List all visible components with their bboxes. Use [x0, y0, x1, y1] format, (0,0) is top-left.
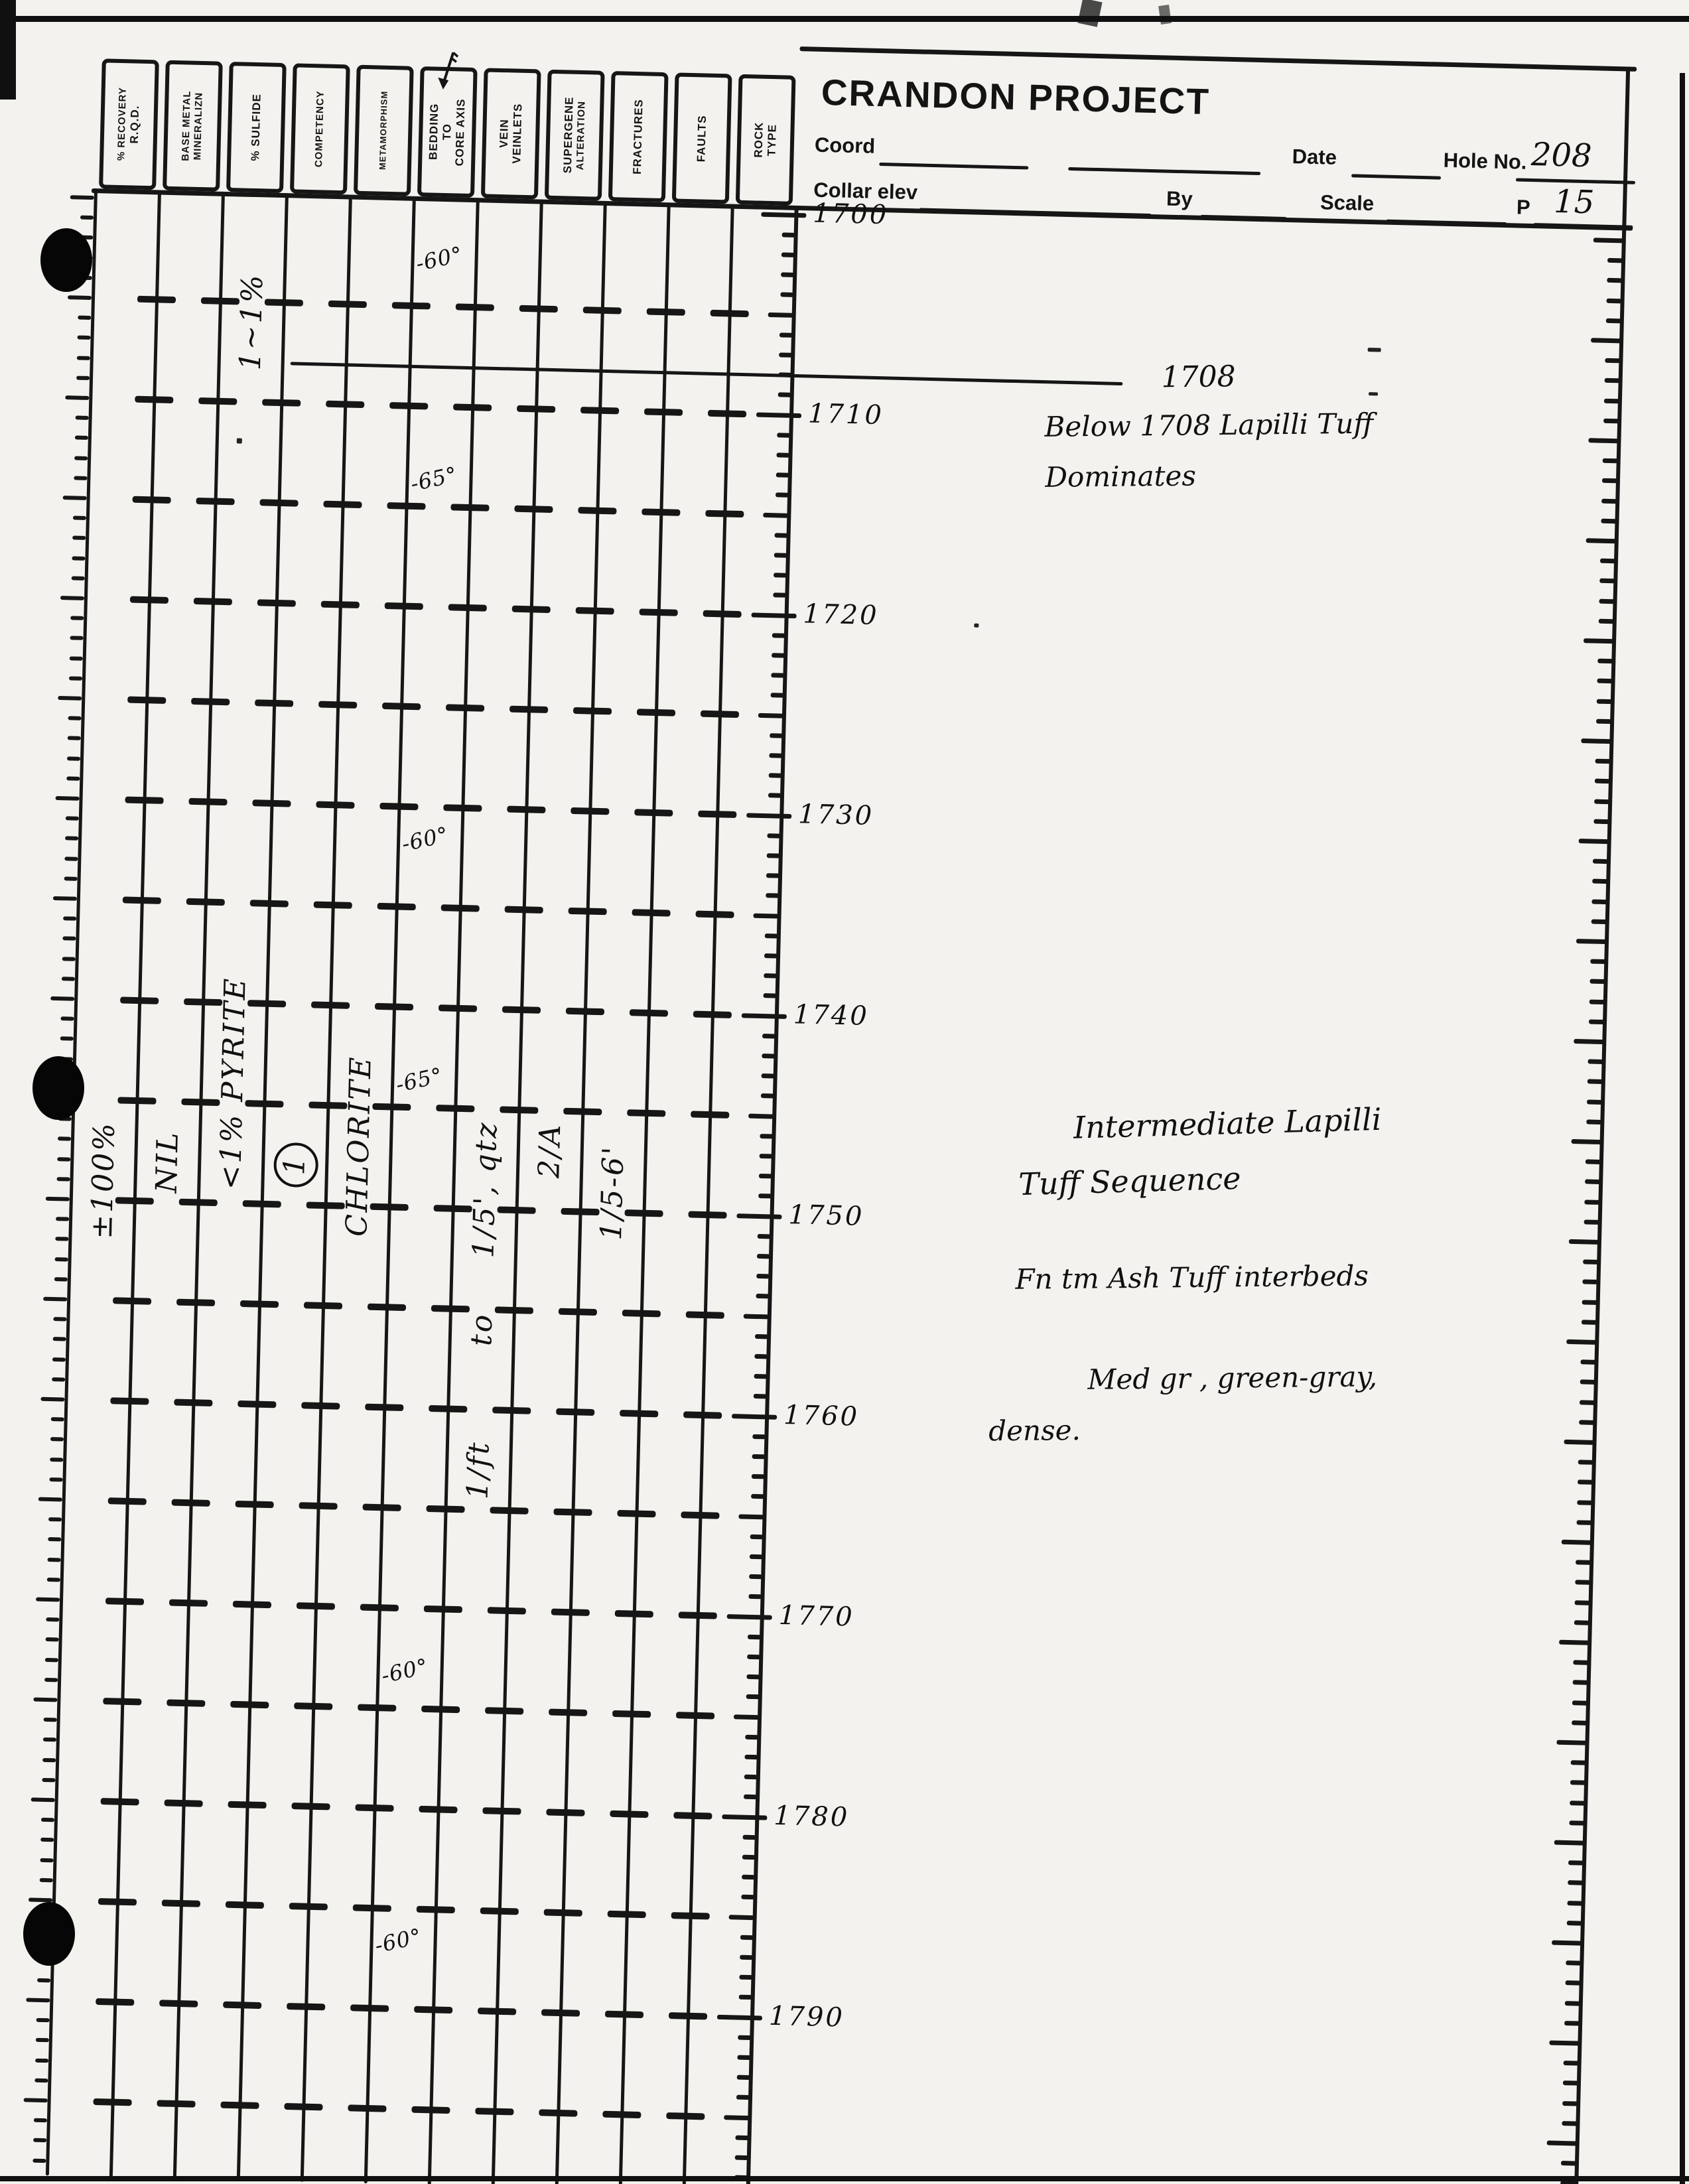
left-ruler-tick	[64, 876, 78, 880]
column-tick	[617, 1510, 655, 1517]
depth-tick-stub	[756, 1815, 767, 1820]
right-ruler-tick	[1606, 318, 1622, 324]
left-ruler-tick	[60, 596, 84, 600]
column-header-label: SUPERGENE	[562, 96, 576, 173]
column-tick	[424, 1605, 462, 1613]
depth-tick	[749, 1574, 762, 1579]
column-tick	[348, 2104, 386, 2112]
left-ruler-tick	[26, 1998, 50, 2002]
column-tick	[622, 1310, 661, 1317]
right-ruler-tick	[1581, 738, 1611, 744]
depth-tick-stub	[791, 413, 801, 417]
left-ruler-tick	[46, 1617, 59, 1621]
right-ruler-tick	[1547, 2140, 1578, 2146]
scan-top-edge	[0, 16, 1689, 22]
column-tick	[683, 1411, 722, 1418]
column-tick	[615, 1610, 653, 1617]
column-tick	[289, 1903, 328, 1910]
column-tick	[647, 308, 685, 315]
ink-speck	[237, 438, 242, 443]
date-label: Date	[1292, 145, 1337, 170]
column-tick	[551, 1609, 590, 1616]
right-ruler-tick	[1564, 1440, 1594, 1445]
right-ruler-tick	[1605, 358, 1621, 364]
right-ruler-tick	[1564, 2021, 1580, 2026]
column-tick	[375, 1003, 413, 1010]
depth-scale-line	[746, 206, 799, 2184]
left-ruler-tick	[43, 1738, 56, 1741]
left-ruler-tick	[34, 2079, 48, 2082]
bedding-angle-note: -65°	[408, 462, 460, 497]
column-tick	[370, 1203, 409, 1211]
column-tick	[137, 296, 176, 303]
ink-speck	[1368, 348, 1381, 352]
column-tick	[385, 602, 423, 610]
column-tick	[421, 1706, 460, 1713]
depth-tick	[744, 1775, 758, 1779]
right-ruler-tick	[1588, 438, 1619, 443]
column-tick	[539, 2109, 577, 2116]
depth-tick	[722, 1814, 756, 1819]
depth-tick	[757, 1254, 770, 1259]
project-title: CRANDON PROJECT	[821, 71, 1211, 123]
right-ruler-tick	[1589, 999, 1605, 1004]
depth-tick	[732, 1414, 766, 1419]
depth-tick	[754, 1354, 768, 1359]
left-ruler-tick	[56, 1217, 69, 1221]
left-ruler-tick	[60, 1016, 74, 1020]
column-header-label: ALTERATION	[575, 101, 587, 171]
depth-tick-stub	[752, 2015, 762, 2020]
column-tick	[127, 697, 166, 704]
left-ruler-tick	[36, 2038, 49, 2042]
left-ruler-tick	[69, 676, 82, 680]
left-ruler-tick	[78, 316, 91, 320]
left-ruler-tick	[68, 736, 81, 740]
left-ruler-tick	[58, 696, 82, 701]
column-header-label: BASE METAL	[180, 90, 192, 161]
right-ruler-tick	[1568, 1860, 1584, 1866]
column-header-label: % SULFIDE	[249, 94, 263, 161]
column-header-label: TYPE	[766, 124, 779, 157]
depth-label: 1730	[798, 799, 874, 831]
column-tick	[624, 1209, 663, 1217]
depth-tick	[754, 1374, 768, 1379]
column-header-label: FAULTS	[695, 115, 709, 162]
right-ruler-tick	[1562, 2101, 1578, 2106]
entry-vein: 1/ft	[460, 1440, 496, 1499]
punch-hole	[40, 228, 92, 292]
depth-tick	[763, 512, 788, 517]
column-tick	[392, 302, 431, 309]
depth-tick	[782, 232, 795, 237]
coord-blank-2	[1068, 167, 1260, 175]
left-ruler-tick	[33, 1698, 57, 1702]
left-ruler-tick	[57, 1157, 70, 1161]
column-tick	[240, 1300, 279, 1308]
column-header-supergene: SUPERGENEALTERATION	[545, 70, 605, 201]
left-ruler-tick	[73, 516, 86, 520]
ink-speck	[974, 624, 979, 628]
column-tick	[159, 2000, 198, 2007]
hole-no-value: 208	[1530, 136, 1592, 174]
depth-label: 1700	[813, 198, 889, 231]
column-tick	[306, 1201, 345, 1209]
contact-depth-label: 1708	[1161, 350, 1236, 403]
right-ruler-line	[1574, 66, 1630, 2184]
left-ruler-tick	[41, 1818, 54, 1822]
right-ruler-tick	[1595, 779, 1611, 784]
bedding-angle-note: -60°	[399, 822, 451, 857]
left-ruler-tick	[62, 957, 76, 961]
right-ruler-tick	[1572, 1139, 1602, 1144]
depth-tick	[773, 593, 786, 598]
column-tick	[553, 1509, 592, 1516]
right-ruler-tick	[1579, 1420, 1595, 1425]
column-tick	[169, 1599, 208, 1606]
column-tick	[255, 699, 293, 707]
column-tick	[492, 1406, 531, 1414]
left-ruler-tick	[38, 1497, 62, 1502]
depth-tick	[748, 1113, 774, 1119]
column-tick	[512, 606, 551, 613]
left-ruler-tick	[56, 796, 80, 801]
scan-corner-mark	[0, 0, 16, 100]
bedding-angle-arrow-icon	[435, 48, 459, 92]
depth-tick	[755, 1334, 768, 1339]
left-ruler-tick	[58, 1137, 71, 1141]
column-header-label: ROCK	[753, 121, 766, 157]
left-ruler-tick	[50, 1458, 63, 1462]
column-tick	[500, 1106, 538, 1113]
column-tick	[181, 1099, 220, 1106]
depth-tick	[776, 452, 789, 457]
column-tick	[184, 998, 222, 1006]
depth-tick	[766, 893, 779, 898]
column-tick	[117, 1097, 156, 1104]
right-ruler-tick	[1569, 1239, 1599, 1245]
depth-tick	[737, 2075, 750, 2080]
column-header-label: METAMORPHISM	[378, 91, 389, 171]
depth-tick	[771, 693, 784, 698]
column-tick	[681, 1511, 719, 1519]
entry-vein: to	[464, 1312, 499, 1346]
column-tick	[441, 904, 480, 912]
right-ruler-tick	[1597, 699, 1613, 704]
column-header-label: FRACTURES	[632, 99, 645, 174]
depth-tick	[760, 1134, 773, 1138]
depth-tick	[764, 993, 777, 998]
depth-tick	[767, 833, 780, 838]
depth-tick	[750, 1554, 763, 1559]
right-ruler-tick	[1561, 2161, 1577, 2166]
depth-tick	[756, 412, 791, 417]
column-tick	[485, 1707, 523, 1714]
right-ruler-tick	[1579, 839, 1609, 844]
column-tick	[363, 1504, 401, 1511]
entry-metamorphism: CHLORITE	[340, 1055, 378, 1237]
right-ruler-tick	[1593, 238, 1624, 243]
left-ruler-tick	[45, 1658, 58, 1662]
column-tick	[358, 1704, 396, 1711]
column-tick	[196, 498, 234, 505]
punch-hole	[23, 1902, 75, 1966]
left-ruler-tick	[53, 896, 77, 901]
column-tick	[431, 1305, 470, 1312]
depth-tick	[747, 1655, 760, 1659]
right-ruler-tick	[1570, 1801, 1586, 1806]
right-ruler-tick	[1582, 1280, 1598, 1285]
column-tick	[186, 898, 225, 906]
right-ruler-tick	[1593, 819, 1609, 824]
depth-tick	[779, 332, 793, 337]
right-ruler-tick	[1559, 1640, 1589, 1645]
depth-tick	[758, 1234, 771, 1239]
right-ruler-tick	[1584, 1199, 1600, 1205]
depth-tick	[764, 973, 777, 978]
depth-tick-stub	[766, 1414, 777, 1419]
right-ruler-tick	[1573, 1660, 1589, 1665]
left-ruler-tick	[63, 916, 76, 920]
depth-tick	[744, 1795, 757, 1799]
depth-tick	[776, 472, 789, 477]
left-ruler-tick	[74, 476, 87, 480]
right-ruler-tick	[1590, 959, 1606, 965]
right-ruler-tick	[1586, 538, 1617, 543]
column-tick	[198, 397, 237, 405]
depth-tick	[768, 793, 781, 797]
column-tick	[544, 1909, 582, 1916]
column-line	[683, 204, 734, 2184]
right-ruler-tick	[1577, 1520, 1593, 1525]
right-ruler-tick	[1591, 338, 1621, 343]
column-tick	[110, 1397, 149, 1404]
column-tick	[446, 704, 484, 711]
right-ruler-tick	[1582, 1320, 1597, 1325]
column-tick	[705, 510, 744, 517]
by-label: By	[1166, 187, 1193, 212]
depth-tick	[742, 1875, 755, 1879]
depth-tick	[774, 573, 787, 577]
left-ruler-tick	[68, 717, 81, 720]
column-header-label: CORE AXIS	[454, 98, 467, 166]
column-tick	[108, 1497, 147, 1505]
left-ruler-tick	[67, 756, 80, 760]
right-ruler-tick	[1599, 598, 1615, 604]
column-tick	[708, 410, 746, 417]
right-ruler-tick	[1607, 278, 1623, 283]
column-tick	[688, 1211, 726, 1218]
column-tick	[245, 1100, 283, 1107]
left-ruler-tick	[70, 656, 83, 660]
column-tick	[328, 301, 367, 308]
depth-tick	[743, 1834, 756, 1839]
column-tick	[627, 1109, 665, 1117]
depth-tick	[781, 273, 794, 277]
column-tick	[105, 1598, 144, 1605]
left-ruler-tick	[44, 1718, 57, 1722]
right-ruler-tick	[1562, 1540, 1592, 1545]
column-tick	[304, 1302, 342, 1309]
left-ruler-tick	[47, 1578, 60, 1582]
depth-label: 1790	[769, 2001, 845, 2033]
left-ruler-tick	[70, 636, 83, 640]
left-ruler-tick	[31, 1797, 55, 1802]
left-ruler-tick	[51, 1417, 64, 1421]
column-tick	[453, 403, 492, 411]
column-tick	[602, 2111, 641, 2118]
left-ruler-tick	[48, 1537, 61, 1541]
left-ruler-tick	[68, 295, 92, 300]
column-tick	[247, 1000, 286, 1007]
right-ruler-tick	[1603, 419, 1619, 424]
column-tick	[429, 1405, 467, 1412]
column-tick	[228, 1801, 266, 1809]
left-ruler-tick	[40, 1838, 54, 1842]
right-ruler-tick	[1562, 2121, 1578, 2126]
right-ruler-tick	[1607, 298, 1623, 303]
column-tick	[569, 908, 607, 915]
left-ruler-tick	[50, 1437, 64, 1441]
right-ruler-tick	[1569, 1820, 1585, 1826]
column-tick	[157, 2100, 195, 2107]
left-ruler-tick	[36, 1598, 60, 1602]
column-tick	[498, 1206, 536, 1213]
left-ruler-tick	[42, 1778, 55, 1782]
right-ruler-tick	[1580, 1400, 1595, 1405]
depth-tick	[752, 1434, 766, 1439]
column-tick	[514, 506, 553, 513]
left-ruler-tick	[42, 1757, 56, 1761]
left-ruler-tick	[37, 1978, 50, 1982]
left-ruler-tick	[65, 837, 78, 841]
column-header-rock-type: ROCKTYPE	[736, 74, 796, 206]
right-ruler-tick	[1586, 1119, 1602, 1125]
left-ruler-tick	[72, 556, 85, 560]
column-tick	[434, 1205, 472, 1212]
right-ruler-tick	[1604, 398, 1620, 403]
right-ruler-tick	[1554, 1840, 1585, 1846]
left-ruler-tick	[49, 1477, 62, 1481]
depth-tick	[778, 393, 791, 397]
left-ruler-tick	[60, 1037, 74, 1041]
column-tick	[475, 2108, 513, 2115]
depth-tick	[761, 1093, 774, 1098]
bedding-angle-note: -60°	[379, 1653, 431, 1688]
depth-tick	[756, 1294, 769, 1298]
column-tick	[450, 504, 489, 511]
column-tick	[188, 798, 227, 805]
note-line: dense.	[988, 1402, 1378, 1456]
right-ruler-tick	[1605, 378, 1621, 383]
hole-no-label: Hole No.	[1443, 149, 1527, 174]
right-ruler-tick	[1601, 519, 1617, 524]
column-tick	[411, 2106, 450, 2114]
bedding-angle-note: -60°	[413, 241, 465, 276]
depth-tick-stub	[786, 613, 797, 618]
left-ruler-tick	[50, 996, 74, 1001]
left-ruler-tick	[47, 1558, 60, 1562]
left-ruler-tick	[40, 1878, 53, 1882]
depth-tick	[752, 612, 786, 618]
column-header-fractures: FRACTURES	[608, 71, 669, 202]
depth-tick	[727, 1614, 762, 1619]
column-tick	[350, 2004, 389, 2012]
column-tick	[287, 2003, 325, 2010]
right-ruler-tick	[1576, 1560, 1591, 1565]
column-tick	[417, 1906, 455, 1913]
right-ruler-tick	[1596, 718, 1612, 724]
right-ruler-tick	[1595, 759, 1611, 764]
column-tick	[637, 709, 675, 716]
column-header-label: R.Q.D.	[129, 105, 141, 143]
depth-tick	[735, 2135, 748, 2140]
right-ruler-tick	[1575, 1600, 1591, 1605]
depth-label: 1750	[788, 1199, 864, 1232]
coord-label: Coord	[815, 133, 876, 159]
depth-tick	[748, 1594, 762, 1599]
column-tick	[237, 1400, 276, 1408]
left-ruler-tick	[40, 1858, 53, 1862]
depth-tick-stub	[776, 1014, 787, 1018]
column-header-label: % RECOVERY	[116, 87, 128, 161]
column-tick	[632, 909, 671, 916]
scan-smudge	[1077, 0, 1102, 27]
column-tick	[135, 396, 173, 403]
column-tick	[482, 1807, 521, 1814]
column-tick	[125, 796, 163, 803]
column-tick	[243, 1200, 281, 1207]
column-tick	[443, 804, 482, 811]
right-ruler-tick	[1591, 919, 1607, 924]
column-tick	[695, 911, 734, 918]
depth-tick	[729, 1915, 754, 1920]
column-tick	[191, 698, 230, 705]
column-tick	[478, 2008, 516, 2015]
right-ruler-tick	[1573, 1680, 1589, 1686]
depth-tick	[758, 713, 783, 718]
depth-tick	[769, 753, 782, 758]
column-header-sulfide: % SULFIDE	[226, 62, 287, 193]
column-tick	[120, 996, 159, 1004]
depth-tick	[769, 773, 782, 778]
left-ruler-tick	[40, 1397, 64, 1402]
column-tick	[505, 906, 543, 914]
entry-recovery: ±100%	[85, 1121, 121, 1239]
depth-tick	[762, 1034, 776, 1038]
right-ruler-tick	[1552, 1941, 1582, 1946]
column-tick	[174, 1399, 212, 1406]
depth-tick	[717, 2014, 752, 2019]
left-ruler-tick	[46, 1197, 70, 1201]
depth-tick	[772, 653, 785, 657]
left-ruler-tick	[48, 1517, 62, 1521]
column-tick	[101, 1798, 139, 1805]
left-ruler-tick	[75, 436, 88, 440]
column-tick	[519, 305, 558, 312]
column-tick	[250, 900, 289, 907]
entry-sulfide: 1~1%	[234, 273, 270, 371]
column-tick	[640, 608, 678, 616]
depth-tick	[744, 1314, 769, 1319]
entry-fractures: 1/5-6'	[594, 1144, 630, 1241]
right-ruler-tick	[1577, 1500, 1593, 1505]
right-ruler-tick	[1601, 498, 1617, 504]
column-tick	[389, 402, 428, 409]
column-tick	[365, 1404, 403, 1411]
depth-tick	[776, 493, 789, 498]
column-tick	[311, 1001, 350, 1008]
